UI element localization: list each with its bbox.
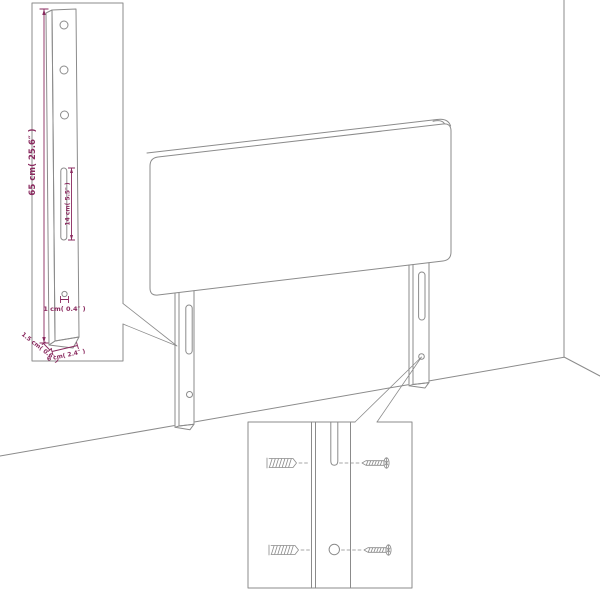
left-leg-bottom-face [175,424,194,430]
left-leg-slot [186,305,192,354]
headboard-front-panel [150,124,451,295]
screw-icon [362,458,389,468]
left-leg [175,291,194,430]
screw-icon [364,545,391,555]
wall-anchor-icon [269,545,299,555]
mounting-detail-callout [248,422,412,588]
wall-anchor-icon [267,458,297,468]
floor-line-left [0,357,564,456]
right-leg [409,263,429,388]
leg-detail-callout: 65 cm( 25.6″ ) 14 cm( 5.5″ ) 1 cm( 0.4″ … [20,3,123,365]
leg-detail-leader-line [123,304,177,347]
headboard [147,119,451,295]
dimension-label-slot-length: 14 cm( 5.5″ ) [65,182,72,225]
left-leg-screw-hole [187,392,193,398]
right-leg-slot [419,272,425,320]
diagram-canvas: 65 cm( 25.6″ ) 14 cm( 5.5″ ) 1 cm( 0.4″ … [0,0,600,600]
mounting-callout-border [248,422,412,588]
headboard-top-corner-curl [433,121,444,124]
floor-line-right [564,357,600,376]
dimension-label-bottom-hole: 1 cm( 0.4″ ) [43,305,85,313]
right-leg-bottom-face [409,383,429,388]
headboard-dimension-diagram: 65 cm( 25.6″ ) 14 cm( 5.5″ ) 1 cm( 0.4″ … [0,0,600,600]
mounting-callout-hole [329,544,339,554]
mounting-detail-leader-line [355,357,422,422]
dimension-label-leg-height: 65 cm( 25.6″ ) [28,128,38,195]
dimension-leg-height: 65 cm( 25.6″ ) [28,9,49,343]
mounting-callout-slot [331,422,338,465]
leader-lines [123,304,422,423]
